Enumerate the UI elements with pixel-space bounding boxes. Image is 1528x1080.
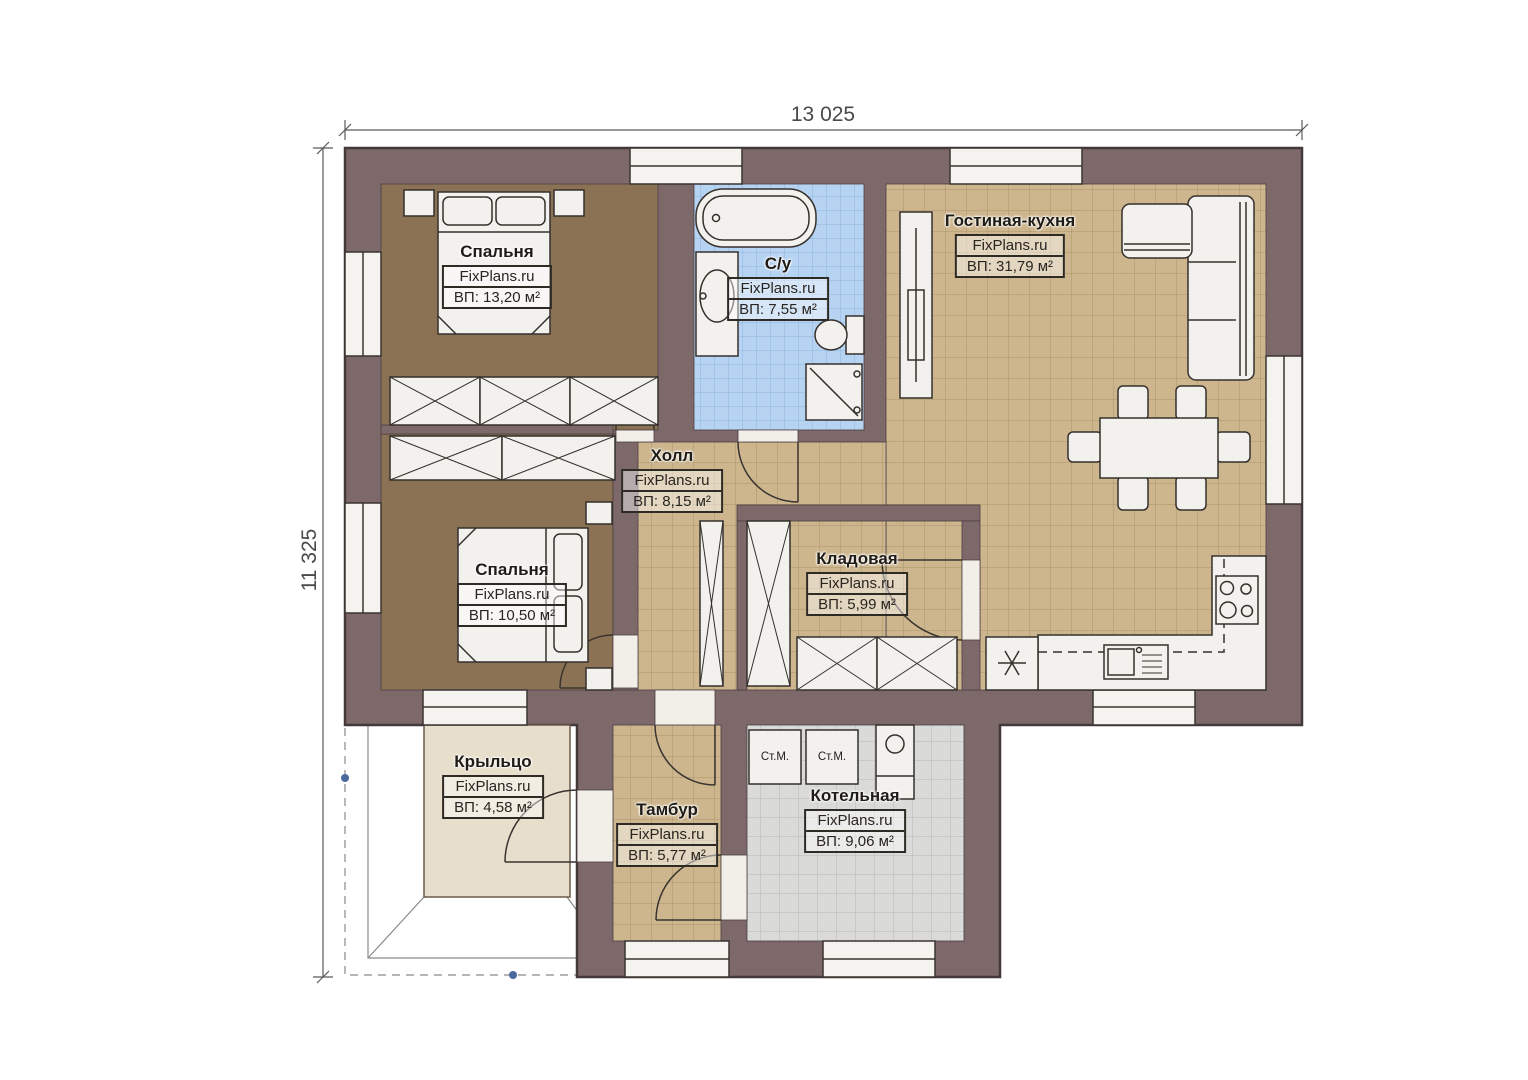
stove <box>1216 576 1258 624</box>
room-label-bedroom-1: Спальня FixPlans.ru ВП: 13,20 м² <box>442 242 552 309</box>
room-area: ВП: 10,50 м² <box>459 606 565 625</box>
fridge <box>986 637 1038 690</box>
wall-storage-left <box>737 521 747 690</box>
watermark-brand: FixPlans.ru <box>618 825 716 846</box>
door-opening-bathroom <box>738 430 798 442</box>
watermark-box: FixPlans.ru ВП: 7,55 м² <box>727 277 829 321</box>
storage-cabinet <box>747 521 790 686</box>
window-top-living <box>950 148 1082 184</box>
floor-plan-page: 13 025 11 325 Спальня FixPlans.ru ВП: 13… <box>0 0 1528 1080</box>
room-area: ВП: 7,55 м² <box>729 300 827 319</box>
room-label-storage: Кладовая FixPlans.ru ВП: 5,99 м² <box>806 549 908 616</box>
roof-node-dot <box>341 774 349 782</box>
watermark-brand: FixPlans.ru <box>957 236 1063 257</box>
window-south-kitchen <box>1093 690 1195 725</box>
room-name: Кладовая <box>806 549 908 569</box>
window-bottom-boiler <box>823 941 935 977</box>
room-area: ВП: 8,15 м² <box>623 492 721 511</box>
room-area: ВП: 5,99 м² <box>808 595 906 614</box>
room-name: Тамбур <box>616 800 718 820</box>
storage-wardrobe <box>797 637 957 690</box>
window-top-bathroom <box>630 148 742 184</box>
room-label-living-kitchen: Гостиная-кухня FixPlans.ru ВП: 31,79 м² <box>945 211 1075 278</box>
room-name: Крыльцо <box>442 752 544 772</box>
room-area: ВП: 5,77 м² <box>618 846 716 865</box>
hall-cabinet <box>700 521 723 686</box>
watermark-box: FixPlans.ru ВП: 13,20 м² <box>442 265 552 309</box>
washing-machine-1-label: Ст.М. <box>761 751 789 763</box>
wall-between-bedrooms <box>381 425 613 434</box>
room-label-vestibule: Тамбур FixPlans.ru ВП: 5,77 м² <box>616 800 718 867</box>
room-label-bathroom: С/у FixPlans.ru ВП: 7,55 м² <box>727 254 829 321</box>
room-label-porch: Крыльцо FixPlans.ru ВП: 4,58 м² <box>442 752 544 819</box>
dimension-width-label: 13 025 <box>791 103 855 127</box>
watermark-brand: FixPlans.ru <box>623 471 721 492</box>
window-bottom-vestibule <box>625 941 729 977</box>
room-name: С/у <box>727 254 829 274</box>
window-left-bedroom-2 <box>345 503 381 613</box>
watermark-brand: FixPlans.ru <box>806 811 904 832</box>
room-name: Спальня <box>457 560 567 580</box>
watermark-brand: FixPlans.ru <box>808 574 906 595</box>
roof-node-dot <box>509 971 517 979</box>
watermark-box: FixPlans.ru ВП: 9,06 м² <box>804 809 906 853</box>
room-name: Холл <box>621 446 723 466</box>
door-opening-storage <box>962 560 980 640</box>
watermark-brand: FixPlans.ru <box>444 267 550 288</box>
kitchen-sink <box>1104 645 1168 679</box>
shower <box>806 364 862 420</box>
room-label-boiler-room: Котельная FixPlans.ru ВП: 9,06 м² <box>804 786 906 853</box>
watermark-box: FixPlans.ru ВП: 8,15 м² <box>621 469 723 513</box>
room-area: ВП: 31,79 м² <box>957 257 1063 276</box>
watermark-box: FixPlans.ru ВП: 5,99 м² <box>806 572 908 616</box>
watermark-box: FixPlans.ru ВП: 4,58 м² <box>442 775 544 819</box>
watermark-brand: FixPlans.ru <box>729 279 827 300</box>
room-name: Гостиная-кухня <box>945 211 1075 231</box>
wardrobe-bedroom-1 <box>390 377 658 425</box>
door-opening-porch <box>577 790 613 862</box>
door-opening-bedroom-2 <box>613 635 638 688</box>
door-opening-hall-vestibule <box>655 690 715 725</box>
watermark-brand: FixPlans.ru <box>444 777 542 798</box>
room-area: ВП: 9,06 м² <box>806 832 904 851</box>
room-area: ВП: 4,58 м² <box>444 798 542 817</box>
washing-machine-2-label: Ст.М. <box>818 751 846 763</box>
window-right-living <box>1266 356 1302 504</box>
room-name: Котельная <box>804 786 906 806</box>
window-left-bedroom-1 <box>345 252 381 356</box>
watermark-box: FixPlans.ru ВП: 31,79 м² <box>955 234 1065 278</box>
room-label-hall: Холл FixPlans.ru ВП: 8,15 м² <box>621 446 723 513</box>
window-south-bedroom-2 <box>423 690 527 725</box>
tv-unit <box>900 212 932 398</box>
watermark-brand: FixPlans.ru <box>459 585 565 606</box>
room-name: Спальня <box>442 242 552 262</box>
door-opening-bedroom-1 <box>616 430 654 442</box>
floor-plan-drawing <box>0 0 1528 1080</box>
room-label-bedroom-2: Спальня FixPlans.ru ВП: 10,50 м² <box>457 560 567 627</box>
toilet <box>815 316 864 354</box>
door-opening-vestibule-boiler <box>721 855 747 920</box>
room-area: ВП: 13,20 м² <box>444 288 550 307</box>
wardrobe-bedroom-2 <box>390 436 615 480</box>
dimension-height-label: 11 325 <box>298 520 322 600</box>
wall-storage-top <box>737 505 980 521</box>
watermark-box: FixPlans.ru ВП: 10,50 м² <box>457 583 567 627</box>
bathtub <box>696 189 816 247</box>
watermark-box: FixPlans.ru ВП: 5,77 м² <box>616 823 718 867</box>
